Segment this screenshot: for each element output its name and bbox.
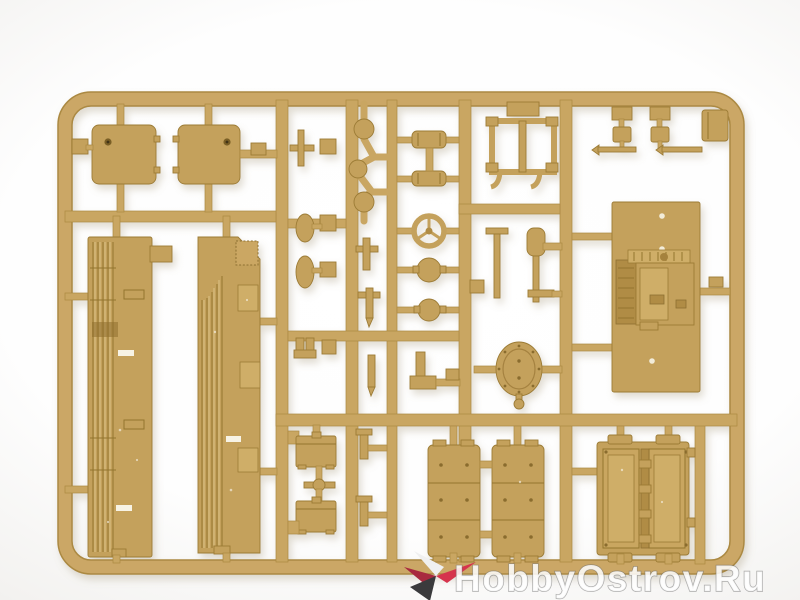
tool-parts: [470, 228, 562, 302]
round-knob-parts: [397, 258, 460, 389]
sprue-photo: HobbyOstrov.Ru: [0, 0, 800, 600]
rack-frame-part: [486, 102, 558, 187]
engine-plate: [572, 202, 730, 392]
watermark-text: HobbyOstrov.Ru: [454, 558, 766, 599]
hatch-plate-a: [72, 104, 160, 212]
hanging-fittings: [592, 107, 728, 155]
stowage-boxes: [288, 425, 387, 534]
watermark: HobbyOstrov.Ru: [404, 551, 766, 600]
oval-hatch-part: [474, 342, 562, 409]
sprue-photo-canvas: HobbyOstrov.Ru: [0, 0, 800, 600]
sprue: [65, 99, 737, 567]
hatch-doors: [572, 426, 695, 564]
small-fittings-left-column: [290, 130, 336, 358]
hull-side-panel: [198, 216, 277, 562]
cylinder-parts: [397, 131, 459, 186]
steering-wheel-part: [397, 216, 459, 246]
fender-panel: [65, 216, 172, 563]
track-panels: [428, 426, 544, 563]
hatch-plate-b: [173, 104, 277, 212]
